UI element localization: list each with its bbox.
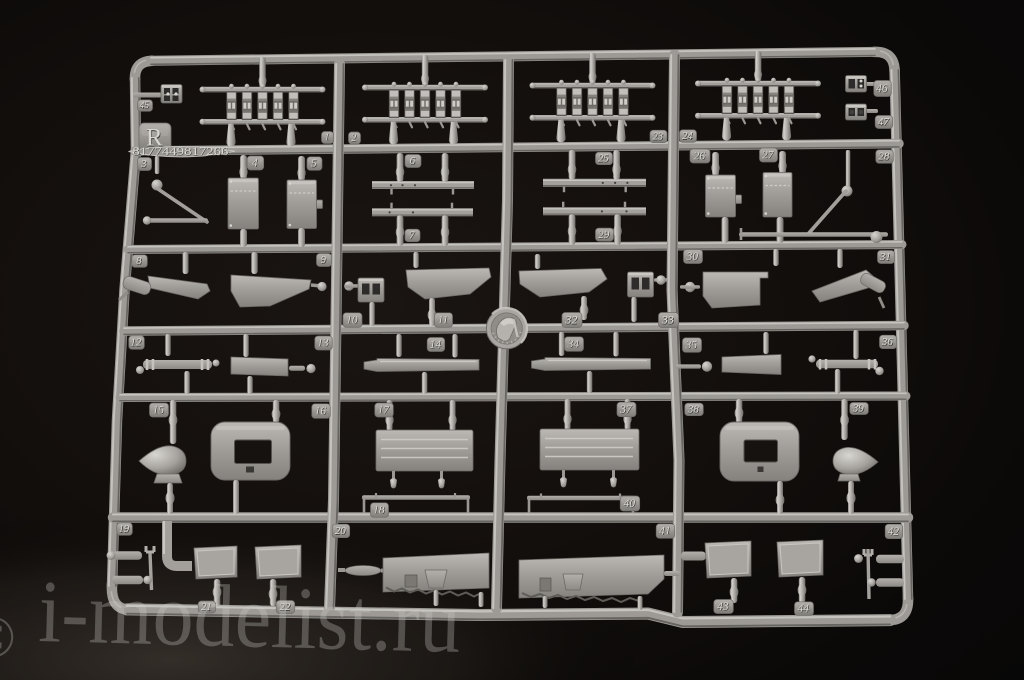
svg-text:39: 39: [852, 403, 865, 415]
svg-text:28: 28: [878, 151, 890, 163]
svg-text:8177449817266: 8177449817266: [132, 144, 228, 158]
svg-text:30: 30: [686, 251, 699, 263]
svg-text:42: 42: [888, 526, 900, 538]
svg-text:6: 6: [410, 155, 416, 167]
svg-text:1: 1: [324, 132, 329, 143]
svg-text:13: 13: [317, 337, 329, 349]
svg-text:19: 19: [119, 524, 130, 535]
svg-text:31: 31: [879, 251, 891, 263]
svg-text:27: 27: [762, 149, 775, 161]
svg-text:15: 15: [153, 404, 165, 416]
svg-text:41: 41: [659, 525, 671, 537]
svg-text:45: 45: [140, 101, 150, 111]
svg-text:24: 24: [682, 131, 693, 142]
svg-text:38: 38: [687, 404, 700, 416]
svg-text:46: 46: [876, 83, 888, 95]
svg-text:26: 26: [694, 150, 706, 162]
svg-text:25: 25: [598, 154, 609, 165]
svg-text:29: 29: [598, 229, 610, 241]
svg-text:2: 2: [351, 133, 356, 144]
svg-text:3: 3: [140, 159, 146, 170]
svg-text:11: 11: [438, 314, 449, 326]
svg-text:34: 34: [567, 338, 580, 350]
svg-text:23: 23: [653, 132, 664, 143]
svg-text:35: 35: [685, 339, 698, 351]
svg-text:5: 5: [311, 158, 317, 170]
svg-text:47: 47: [878, 116, 890, 128]
svg-text:18: 18: [373, 504, 385, 516]
svg-text:i-modelist.ru: i-modelist.ru: [37, 563, 461, 672]
svg-text:4: 4: [252, 157, 258, 169]
svg-text:10: 10: [346, 314, 358, 326]
svg-text:7: 7: [409, 231, 415, 242]
svg-text:16: 16: [315, 405, 327, 417]
svg-text:32: 32: [564, 313, 577, 327]
svg-text:©: ©: [0, 603, 17, 670]
svg-text:44: 44: [798, 603, 810, 615]
svg-text:20: 20: [335, 525, 347, 537]
svg-text:36: 36: [881, 336, 894, 348]
svg-text:12: 12: [130, 337, 142, 349]
svg-text:17: 17: [378, 404, 391, 416]
svg-text:9: 9: [321, 255, 327, 266]
svg-text:14: 14: [430, 339, 442, 351]
svg-text:40: 40: [624, 498, 636, 510]
svg-text:37: 37: [619, 404, 633, 416]
svg-text:33: 33: [661, 313, 674, 327]
svg-text:43: 43: [717, 601, 729, 613]
svg-text:8: 8: [136, 256, 142, 267]
